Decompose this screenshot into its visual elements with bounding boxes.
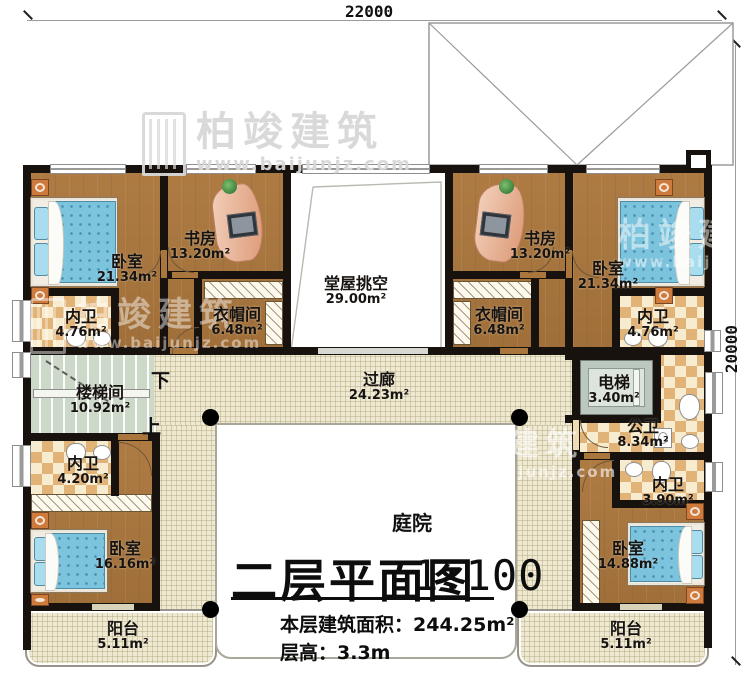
toilet-icon — [66, 443, 86, 462]
nightstand — [655, 287, 673, 304]
bed-pillow — [34, 243, 49, 276]
door-gap — [573, 420, 579, 450]
door-gap — [520, 272, 546, 278]
wardrobe-cloak-right-top — [453, 281, 532, 299]
wardrobe-cloak-left-top — [204, 281, 283, 299]
plant-icon — [222, 179, 237, 194]
door-gap — [566, 250, 572, 278]
stair-down-label: 下 — [151, 366, 170, 393]
window — [704, 330, 721, 352]
door-gap — [161, 250, 167, 278]
floor-plan-canvas: 22000 20000 — [0, 0, 750, 679]
wall — [152, 441, 160, 611]
sink-icon — [93, 331, 111, 346]
courtyard-label: 庭院 — [392, 507, 432, 536]
wall — [653, 352, 661, 423]
bed-blanket — [678, 526, 692, 584]
washer-icon — [654, 428, 672, 448]
floor-height-line: 层高：3.3m — [280, 638, 390, 665]
computer-monitor-icon — [480, 211, 512, 238]
door-gap — [172, 272, 198, 278]
bed-pillow — [689, 243, 704, 276]
wall — [283, 173, 291, 355]
floor-height-label: 层高： — [280, 642, 337, 664]
wall — [445, 271, 573, 279]
floor-corridor-left — [156, 425, 217, 611]
balcony-door-gap — [620, 604, 662, 610]
floor-height-value: 3.3m — [337, 642, 390, 664]
void-opening — [318, 348, 428, 354]
sink-icon — [625, 462, 643, 477]
nightstand — [31, 287, 49, 304]
wall — [572, 352, 580, 611]
window — [50, 164, 126, 174]
floor-balcony-right — [517, 609, 709, 667]
elevator-door — [633, 369, 640, 406]
wall — [565, 352, 661, 360]
window — [705, 372, 723, 414]
wardrobe-cloak-right-side — [453, 301, 471, 345]
door-gap — [500, 348, 528, 354]
bed-pillow — [34, 207, 49, 240]
window — [705, 462, 723, 492]
toilet-icon — [652, 461, 671, 483]
balcony-door-gap — [92, 604, 134, 610]
window — [12, 445, 31, 487]
wardrobe-bottom-left — [31, 494, 152, 512]
window — [186, 164, 256, 174]
wardrobe-cloak-left-side — [265, 301, 283, 345]
toilet-icon — [648, 328, 668, 347]
floor-area-label: 本层建筑面积： — [280, 614, 413, 636]
chimney — [686, 150, 711, 173]
sink-icon — [681, 434, 699, 449]
plan-scale: 1:100 — [413, 551, 544, 600]
elevator-cab — [580, 360, 653, 415]
window — [12, 352, 31, 378]
toilet-icon — [679, 394, 700, 420]
window — [302, 164, 430, 174]
door-gap — [584, 453, 610, 459]
nightstand — [31, 512, 49, 529]
column — [202, 409, 219, 426]
void-inner-outline — [287, 169, 449, 353]
sink-icon — [93, 445, 111, 460]
column — [511, 409, 528, 426]
stair-up-label: 上 — [142, 412, 161, 439]
wall — [612, 288, 620, 347]
nightstand — [686, 503, 704, 520]
window — [586, 164, 660, 174]
toilet-icon — [66, 328, 86, 347]
floor-area-value: 244.25m² — [413, 614, 514, 636]
nightstand — [655, 179, 673, 196]
bed-blanket — [674, 201, 690, 285]
column — [202, 601, 219, 618]
nightstand — [31, 594, 49, 606]
floor-balcony-left — [25, 609, 217, 667]
nightstand — [686, 587, 704, 604]
floor-area-line: 本层建筑面积：244.25m² — [280, 610, 514, 637]
title-underline — [231, 597, 494, 600]
computer-monitor-icon — [227, 211, 259, 238]
wall — [111, 288, 119, 347]
window — [479, 164, 548, 174]
wall — [445, 173, 453, 355]
bed-pillow — [689, 207, 704, 240]
wall — [531, 279, 539, 347]
nightstand — [31, 179, 49, 196]
wardrobe-bottom-right — [582, 520, 600, 605]
wall — [23, 165, 31, 650]
sink-icon — [624, 331, 642, 346]
window — [12, 300, 31, 342]
plant-icon — [499, 179, 514, 194]
